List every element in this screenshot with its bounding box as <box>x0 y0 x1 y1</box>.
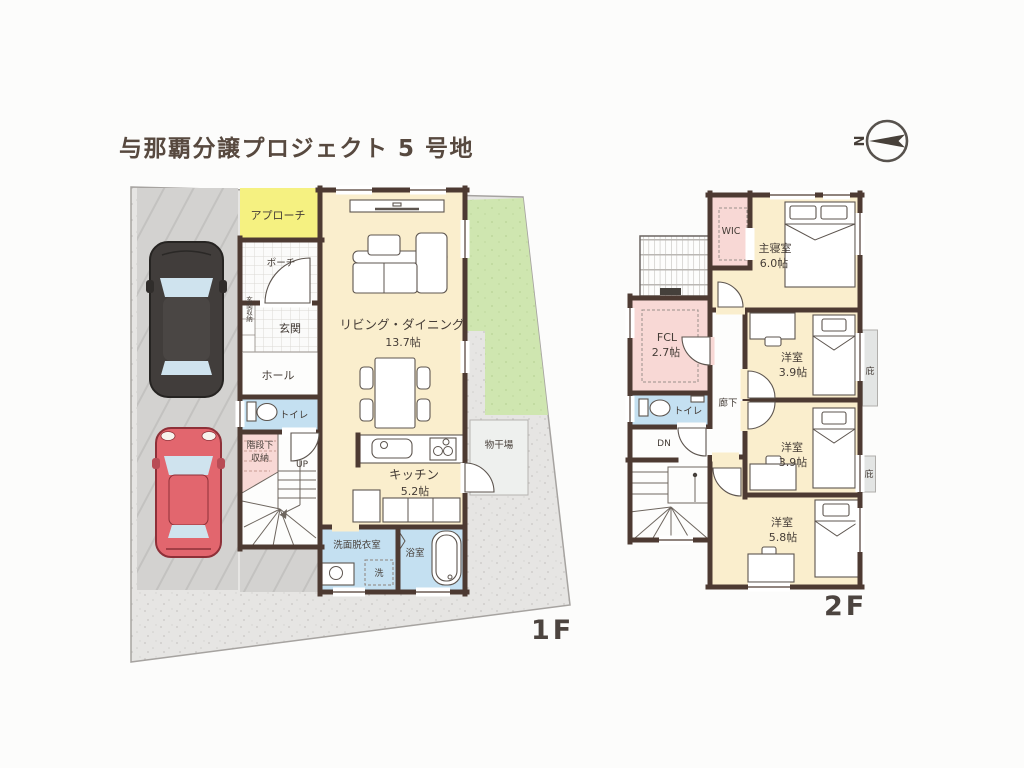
compass-icon: N <box>848 112 928 172</box>
label-toilet-1f: トイレ <box>280 410 309 421</box>
label-master-bedroom-size: 6.0帖 <box>760 257 789 270</box>
label-up: UP <box>296 460 309 470</box>
floor1-label: 1F <box>531 615 574 646</box>
label-kitchen: キッチン <box>389 467 439 482</box>
label-corridor: 廊下 <box>718 397 737 409</box>
label-fcl: FCL <box>657 331 678 344</box>
label-dn: DN <box>657 439 671 449</box>
label-bedroom-a: 洋室 <box>781 350 803 364</box>
floorplan-canvas: 与那覇分譲プロジェクト 5 号地 N <box>0 0 1024 768</box>
floor2-plan: WIC 主寝室 6.0帖 FCL 2.7帖 トイレ 廊下 DN 洋室 3.9帖 … <box>615 180 905 635</box>
corridor-area <box>712 310 745 457</box>
label-bedroom-a-size: 3.9帖 <box>779 366 808 379</box>
compass-north-label: N <box>850 136 865 147</box>
label-kitchen-size: 5.2帖 <box>401 485 430 498</box>
balcony <box>640 236 710 296</box>
label-living-dining: リビング・ダイニング <box>339 317 464 332</box>
label-bedroom-c: 洋室 <box>771 515 793 529</box>
label-entrance-storage: 玄関収納 <box>245 295 253 324</box>
label-eaves-2: 庇 <box>864 468 873 480</box>
label-eaves-1: 庇 <box>865 365 874 377</box>
label-washer: 洗 <box>374 567 383 579</box>
car-red <box>152 428 225 557</box>
page-title: 与那覇分譲プロジェクト 5 号地 <box>119 129 474 163</box>
label-living-dining-size: 13.7帖 <box>385 336 421 349</box>
floor1-plan: アプローチ ポーチ 玄関収納 玄関 ホール トイレ 階段下 収納 UP リビング… <box>110 175 580 675</box>
label-toilet-2f: トイレ <box>674 406 703 417</box>
label-hall: ホール <box>262 369 295 382</box>
label-porch: ポーチ <box>267 258 296 269</box>
label-stair-storage-2: 収納 <box>251 452 269 464</box>
floor2-label: 2F <box>824 591 867 622</box>
label-wic: WIC <box>722 226 741 237</box>
label-bedroom-b: 洋室 <box>781 440 803 454</box>
parking-area-extension <box>240 549 320 592</box>
label-bedroom-c-size: 5.8帖 <box>769 531 798 544</box>
label-bedroom-b-size: 3.9帖 <box>779 456 808 469</box>
label-entrance: 玄関 <box>279 321 301 335</box>
label-bathroom: 浴室 <box>405 547 424 559</box>
car-black <box>146 242 227 397</box>
label-master-bedroom: 主寝室 <box>759 241 792 255</box>
label-washroom: 洗面脱衣室 <box>333 539 381 551</box>
label-stair-storage-1: 階段下 <box>246 439 273 451</box>
label-fcl-size: 2.7帖 <box>652 346 681 359</box>
label-approach: アプローチ <box>251 209 306 222</box>
label-drying-area: 物干場 <box>485 439 514 451</box>
